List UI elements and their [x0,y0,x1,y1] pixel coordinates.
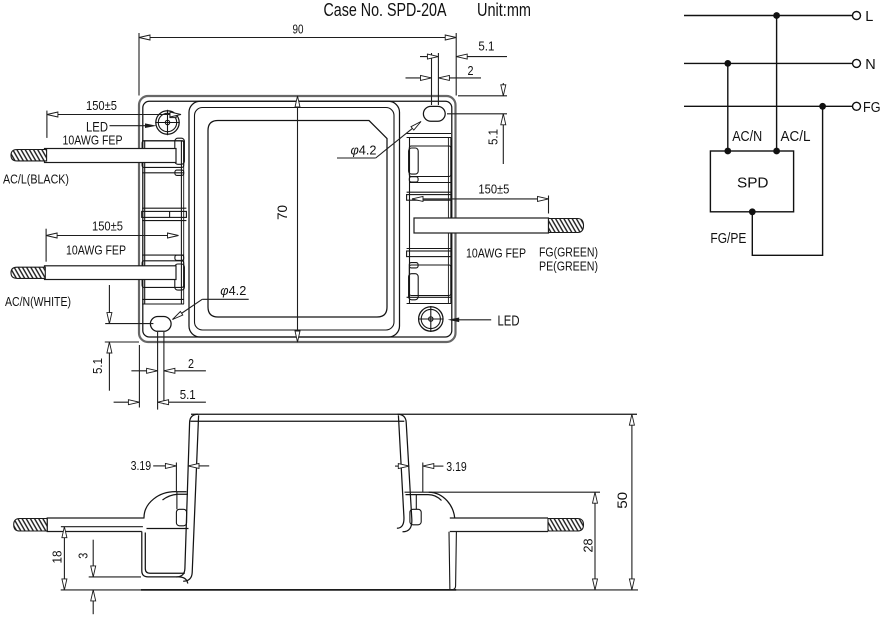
svg-text:3.19: 3.19 [131,458,152,473]
svg-text:150±5: 150±5 [92,219,123,234]
svg-text:150±5: 150±5 [478,182,509,197]
svg-text:50: 50 [614,492,630,509]
svg-text:2: 2 [468,63,474,78]
svg-text:Case No. SPD-20A: Case No. SPD-20A [324,0,448,20]
svg-text:10AWG FEP: 10AWG FEP [466,246,526,261]
svg-text:5.1: 5.1 [90,358,105,374]
svg-text:AC/L(BLACK): AC/L(BLACK) [3,172,69,187]
svg-text:5.1: 5.1 [180,387,196,402]
svg-text:N: N [865,57,875,73]
svg-text:AC/N(WHITE): AC/N(WHITE) [5,294,71,309]
svg-text:PE(GREEN): PE(GREEN) [539,259,598,274]
svg-text:18: 18 [50,551,65,564]
svg-text:AC/L: AC/L [781,129,811,145]
svg-text:5.1: 5.1 [478,39,494,54]
svg-text:LED: LED [498,313,520,330]
svg-text:28: 28 [580,539,595,553]
svg-text:Unit:mm: Unit:mm [477,0,531,20]
svg-text:AC/N: AC/N [732,129,762,145]
svg-text:3: 3 [76,553,91,559]
svg-text:3.19: 3.19 [446,459,467,474]
svg-text:150±5: 150±5 [86,98,117,113]
svg-text:L: L [865,9,873,25]
svg-text:90: 90 [293,22,304,37]
svg-text:FG(GREEN): FG(GREEN) [539,245,598,260]
svg-text:φ4.2: φ4.2 [351,143,377,158]
svg-text:φ4.2: φ4.2 [220,283,246,298]
svg-text:FG: FG [863,100,881,116]
svg-text:10AWG FEP: 10AWG FEP [63,133,123,148]
svg-text:2: 2 [188,356,194,371]
svg-text:70: 70 [274,205,290,220]
svg-text:5.1: 5.1 [486,129,501,145]
svg-text:FG/PE: FG/PE [710,231,746,247]
svg-text:SPD: SPD [737,176,769,192]
svg-text:10AWG FEP: 10AWG FEP [66,243,126,258]
